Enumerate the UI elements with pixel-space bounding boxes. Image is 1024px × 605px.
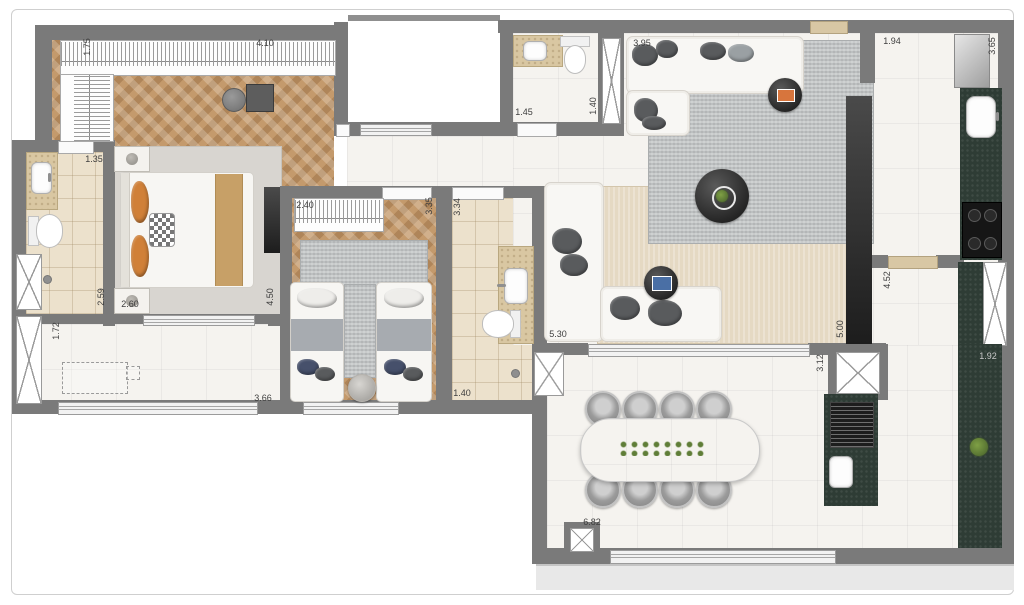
powder-door <box>517 123 557 137</box>
dim-bedroom2-wardrobe: 2.40 <box>296 200 314 210</box>
dim-master-wardrobe-width: 4.10 <box>256 38 274 48</box>
shaft-dining-topleft <box>534 352 564 396</box>
wall-top-right <box>498 20 1008 33</box>
desk-chair <box>222 88 246 112</box>
wall-entry-stub <box>860 33 875 83</box>
dim-ensuite-length: 2.59 <box>96 288 106 306</box>
dim-bath2-width: 1.40 <box>453 388 471 398</box>
powder-sink <box>523 41 547 61</box>
dim-balcony-width: 3.66 <box>254 393 272 403</box>
dim-kitchen-hall-width: 1.94 <box>883 36 901 46</box>
bed2-blanket <box>377 319 431 351</box>
sofa-return-pillow-2 <box>642 116 666 130</box>
ensuite-shower-head <box>44 276 51 283</box>
balcony-slider <box>143 315 255 326</box>
dining-centerpiece <box>618 440 706 456</box>
ensuite-faucet <box>48 173 51 182</box>
ensuite-door <box>58 141 94 154</box>
sofa-left-pillow-3 <box>610 296 640 320</box>
shaft-left-upper <box>16 254 42 310</box>
nightstand-top <box>114 146 150 172</box>
bedroom2-rug-vertical <box>344 284 376 378</box>
headboard <box>121 173 130 287</box>
bed1-blanket <box>291 319 343 351</box>
barbecue-grill <box>830 402 874 448</box>
kitchen-pass-door <box>888 256 938 269</box>
desk <box>246 84 274 112</box>
dim-living-length: 5.00 <box>835 320 845 338</box>
bed-runner <box>215 174 243 286</box>
ensuite-toilet <box>36 214 63 248</box>
balcony-window <box>58 402 258 415</box>
bath2-toilet <box>482 310 514 338</box>
dim-master-wardrobe-depth: 1.75 <box>82 38 92 56</box>
bath2-sink <box>504 268 528 304</box>
dining-slider-bottom <box>610 550 836 564</box>
dim-gourmet-counter: 1.92 <box>979 351 997 361</box>
bed1-pillow <box>297 288 337 308</box>
bed1-pillow-dark <box>315 367 335 381</box>
gourmet-counter-strip <box>958 262 983 346</box>
dim-terrace-width: 6.82 <box>583 517 601 527</box>
wall-balcony-top-pier <box>268 314 282 326</box>
coffee-table <box>695 169 749 223</box>
burner-2 <box>984 209 997 222</box>
wall-notch-left <box>334 22 348 136</box>
master-wardrobe-left <box>60 74 114 142</box>
sofa-left-pillow-1 <box>552 228 582 254</box>
books-stack <box>777 89 795 102</box>
bed2-pillow-dark <box>403 367 423 381</box>
facade-band <box>536 564 1014 590</box>
notch-window <box>360 124 432 136</box>
shaft-service <box>836 352 880 394</box>
dim-living-left-length: 5.30 <box>549 329 567 339</box>
balcony-furniture-outline <box>62 362 128 394</box>
shaft-powder <box>602 38 621 124</box>
wall-master-top <box>35 25 335 40</box>
dim-service-shaft: 3.12 <box>815 354 825 372</box>
shaft-gourmet-cabinet <box>983 262 1007 346</box>
master-door <box>336 124 350 137</box>
dim-kitchen-corridor: 4.52 <box>882 271 892 289</box>
master-bed <box>120 172 254 288</box>
side-table-books <box>768 78 802 112</box>
burner-3 <box>968 237 981 250</box>
dim-bedroom2-length: 3.35 <box>424 197 434 215</box>
entry-door <box>810 21 848 34</box>
living-media-wall <box>846 96 872 344</box>
dim-powder-depth: 1.40 <box>588 97 598 115</box>
wall-master-left <box>35 25 52 148</box>
powder-toilet <box>564 45 586 74</box>
single-bed-1 <box>290 282 344 402</box>
refrigerator <box>954 34 990 88</box>
grill-sink <box>829 456 853 488</box>
bath2-faucet <box>497 284 506 287</box>
pillow-orange-bottom <box>131 235 149 277</box>
single-bed-2 <box>376 282 432 402</box>
master-tv-panel <box>264 187 280 253</box>
floor-plan: 1.75 4.10 1.35 2.59 2.60 4.50 1.72 3.66 … <box>0 0 1024 605</box>
pillow-checker <box>149 213 175 247</box>
dim-ensuite-width: 1.35 <box>85 154 103 164</box>
gourmet-plant <box>970 438 988 456</box>
blue-book <box>652 276 672 291</box>
dim-master-length: 4.50 <box>265 288 275 306</box>
wall-notch-top <box>348 15 500 21</box>
master-wardrobe-top <box>60 40 336 76</box>
dim-bath2-length: 3.34 <box>452 198 462 216</box>
kitchen-sink <box>966 96 996 138</box>
dim-living-width: 3.95 <box>633 38 651 48</box>
bedroom2-window <box>303 402 399 415</box>
dim-balcony-depth: 1.72 <box>51 322 61 340</box>
wall-bedroom2-bath2-divider <box>436 198 452 414</box>
shaft-terrace-corner <box>570 528 594 552</box>
sofa-top-pillow-2 <box>656 40 678 58</box>
wall-powder-left <box>500 20 513 136</box>
dim-powder-width: 1.45 <box>515 107 533 117</box>
coffee-table-plant <box>716 190 728 202</box>
cooktop <box>962 202 1002 258</box>
shaft-left-lower <box>16 316 42 404</box>
dining-slider-top <box>588 344 810 357</box>
dim-kitchen-length: 3.65 <box>987 37 997 55</box>
bath2-shower-head <box>512 370 519 377</box>
bedroom2-rug-horizontal <box>300 240 428 286</box>
bedroom2-stool <box>348 374 376 402</box>
sofa-left-pillow-2 <box>560 254 588 276</box>
sofa-top-pillow-3 <box>700 42 726 60</box>
kitchen-faucet <box>996 112 999 121</box>
dim-master-width: 2.60 <box>121 299 139 309</box>
bed2-pillow <box>384 288 424 308</box>
sofa-top-pillow-4 <box>728 44 754 62</box>
side-table-blue-book <box>644 266 678 300</box>
pillow-orange-top <box>131 181 149 223</box>
sofa-left-pillow-4 <box>648 300 682 326</box>
burner-1 <box>968 209 981 222</box>
burner-4 <box>984 237 997 250</box>
balcony-furniture-outline-small <box>126 366 140 380</box>
